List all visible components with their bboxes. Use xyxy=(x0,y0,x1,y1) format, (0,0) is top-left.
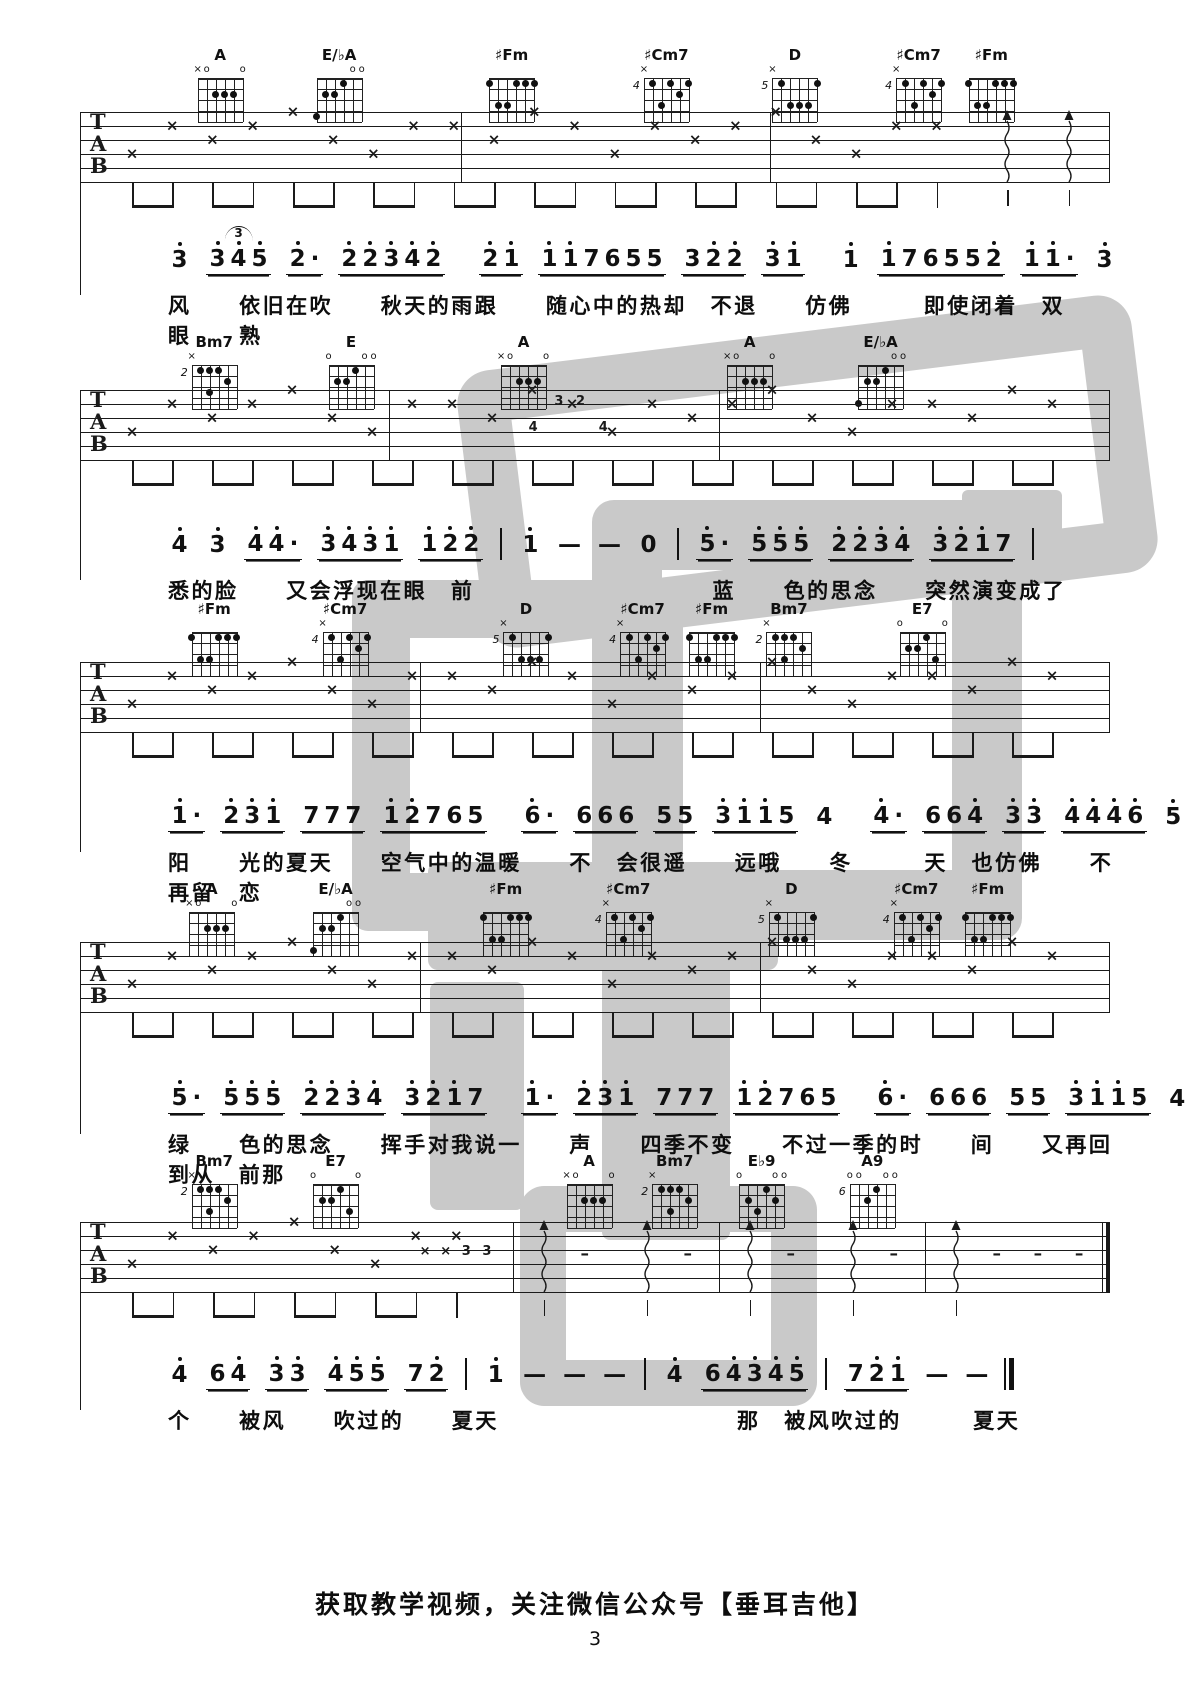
lyrics-line: 个 被风 吹过的 夏天 那 被风吹过的 夏天 xyxy=(168,1405,1118,1435)
beam xyxy=(132,755,174,758)
chord-grid-line xyxy=(727,365,772,367)
staff-line xyxy=(80,984,1110,985)
strum-x-mark: × xyxy=(126,425,139,440)
measure-barline xyxy=(389,390,390,460)
strum-x-mark: × xyxy=(806,683,819,698)
melody-group: 2234 xyxy=(300,1087,386,1114)
staff-line xyxy=(80,154,1110,155)
chord-finger-dot xyxy=(1007,914,1014,921)
note-char: 6 xyxy=(207,1363,228,1386)
chord-grid-line xyxy=(900,632,945,634)
chord-finger-dot xyxy=(346,634,353,641)
chord-name: Bm7 xyxy=(643,1152,707,1170)
note-stem xyxy=(812,732,814,758)
note-stem xyxy=(896,182,898,208)
chord-string-marker-mute: × xyxy=(648,1171,656,1181)
chord-grid-line xyxy=(567,1217,612,1218)
chord-finger-dot xyxy=(188,634,195,641)
note-char: 2 xyxy=(360,248,381,271)
note-char: 3 xyxy=(930,533,951,556)
strum-x-mark: × xyxy=(366,977,379,992)
staff-line xyxy=(80,970,1110,971)
chord-finger-dot xyxy=(337,1186,344,1193)
chord-grid-line xyxy=(739,1206,784,1207)
chord-grid-line xyxy=(772,78,817,79)
strum-x-mark: × xyxy=(966,683,979,698)
note-char: · xyxy=(308,248,322,271)
note-char: 7 xyxy=(423,805,444,828)
melody-group: 122 xyxy=(418,533,483,560)
note-char: 4 xyxy=(1104,805,1125,828)
chord-string-marker-open: o xyxy=(847,1171,853,1181)
note-stem xyxy=(456,1292,458,1318)
note-char: 3 xyxy=(287,1363,308,1386)
melody-group: 1· xyxy=(521,1087,558,1114)
chord-grid-line xyxy=(192,387,237,388)
chord-finger-dot xyxy=(611,914,618,921)
note-char: 2 xyxy=(866,1363,887,1386)
note-char: 3 xyxy=(713,805,734,828)
note-char: 4 xyxy=(1062,805,1083,828)
note-char: 4 xyxy=(402,248,423,271)
beam xyxy=(294,1315,336,1318)
note-char: 7 xyxy=(696,1087,717,1110)
staff-line xyxy=(80,998,1110,999)
note-char: 2 xyxy=(322,1087,343,1110)
strum-x-mark: × xyxy=(206,133,219,148)
staff-right-edge xyxy=(1109,662,1110,732)
note-char: · xyxy=(287,533,301,556)
note-stem xyxy=(652,732,654,758)
melody-group: 117655 xyxy=(538,248,666,275)
chord-grid-line xyxy=(483,923,528,924)
strum-x-mark: × xyxy=(566,669,579,684)
melody-group: 4 xyxy=(168,534,191,560)
melody-group: 64 xyxy=(206,1363,250,1390)
tuplet-label: 3 xyxy=(224,226,252,241)
strum-x-mark: × xyxy=(1046,397,1059,412)
chord-finger-dot xyxy=(722,634,729,641)
chord-finger-dot xyxy=(658,102,665,109)
strum-x-mark: × xyxy=(126,697,139,712)
melody-group: 4 xyxy=(168,1364,191,1390)
measure-barline xyxy=(770,112,771,182)
strum-x-mark: × xyxy=(406,949,419,964)
chord-grid-line xyxy=(900,643,945,644)
strum-x-mark: × xyxy=(806,963,819,978)
chord-finger-dot xyxy=(647,914,654,921)
chord-finger-dot xyxy=(319,1197,326,1204)
chord-grid-line xyxy=(652,1206,697,1207)
note-char: 5 xyxy=(242,1087,263,1110)
chord-grid-line xyxy=(567,1184,612,1186)
chord-grid-line xyxy=(620,632,665,633)
melody-final-barline xyxy=(1004,1358,1014,1390)
melody-group: 5· xyxy=(168,1087,205,1114)
chord-grid-line xyxy=(323,654,368,655)
chord-finger-dot xyxy=(504,102,511,109)
chord-grid-line xyxy=(313,1206,358,1207)
beam xyxy=(932,483,974,486)
chord-grid-line xyxy=(323,632,368,633)
chord-finger-dot xyxy=(626,634,633,641)
chord-finger-dot xyxy=(197,1186,204,1193)
melody-barline xyxy=(644,1358,646,1390)
note-stem xyxy=(575,182,577,208)
strum-x-mark: × xyxy=(246,949,259,964)
system-left-line xyxy=(80,112,81,295)
chord-grid-line xyxy=(965,912,1010,914)
chord-grid-line xyxy=(192,1195,237,1196)
chord-grid-line xyxy=(192,632,237,634)
strum-x-mark: × xyxy=(726,669,739,684)
note-char: 3 xyxy=(595,1087,616,1110)
melody-dash: — xyxy=(562,1364,587,1390)
chord-finger-dot xyxy=(230,91,237,98)
note-char: 1 xyxy=(381,805,402,828)
chord-finger-dot xyxy=(911,102,918,109)
chord-finger-dot xyxy=(495,102,502,109)
staff-annotation: 4 xyxy=(529,420,538,435)
strum-x-mark: × xyxy=(369,1257,382,1272)
chord-finger-dot xyxy=(935,914,942,921)
strum-x-mark: × xyxy=(846,697,859,712)
note-stem xyxy=(972,460,974,486)
chord-string-marker-mute: × xyxy=(497,352,505,362)
staff-line xyxy=(80,182,1110,183)
rest-dash: – xyxy=(786,1244,795,1264)
chord-diagram-E/♭A: E/♭Aoo xyxy=(307,46,371,122)
measure-barline xyxy=(420,942,421,1012)
melody-group: 1 xyxy=(484,1364,507,1390)
beam xyxy=(772,1035,814,1038)
note-char: 4 xyxy=(169,1364,190,1387)
chord-finger-dot xyxy=(676,91,683,98)
beam xyxy=(532,483,574,486)
note-char: 7 xyxy=(899,248,920,271)
chord-finger-dot xyxy=(545,634,552,641)
note-char: 3 xyxy=(169,249,190,272)
strum-x-mark: × xyxy=(686,411,699,426)
note-stem xyxy=(412,460,414,486)
melody-dash: — xyxy=(924,1364,949,1390)
tab-letter: T xyxy=(90,661,106,682)
chord-finger-dot xyxy=(224,378,231,385)
chord-finger-dot xyxy=(810,914,817,921)
note-stem xyxy=(252,460,254,486)
chord-grid-line xyxy=(198,89,243,90)
chord-finger-dot xyxy=(983,102,990,109)
melody-group: 231 xyxy=(573,1087,638,1114)
arrow-tail xyxy=(544,1300,546,1316)
rest-dash: – xyxy=(889,1244,898,1264)
chord-finger-dot xyxy=(322,91,329,98)
note-char: 1 xyxy=(520,534,541,557)
note-char: 5 xyxy=(941,248,962,271)
note-char: 5 xyxy=(791,533,812,556)
chord-diagram-♯Cm7: ♯Cm74× xyxy=(887,46,951,122)
chord-base-fret: 6 xyxy=(839,1185,846,1198)
beam xyxy=(454,205,496,208)
chord-base-fret: 2 xyxy=(181,1185,188,1198)
staff-annotation: 3 xyxy=(482,1244,491,1259)
chord-grid-line xyxy=(900,654,945,655)
note-char: 3 xyxy=(381,248,402,271)
melody-group: 4· xyxy=(870,805,907,832)
chord-finger-dot xyxy=(914,645,921,652)
chord-finger-dot xyxy=(751,378,758,385)
tab-letter: A xyxy=(90,963,106,984)
chord-finger-dot xyxy=(197,367,204,374)
staff-line xyxy=(80,942,1110,943)
chord-string-marker-open: o xyxy=(195,899,201,909)
strum-x-mark: × xyxy=(726,949,739,964)
note-char: 5 xyxy=(818,1087,839,1110)
note-char: 3 xyxy=(343,1087,364,1110)
measure-barline xyxy=(760,662,761,732)
melody-group: 666 xyxy=(926,1087,991,1114)
arrow-tail xyxy=(1069,190,1071,206)
note-char: 6 xyxy=(574,805,595,828)
note-stem xyxy=(1052,732,1054,758)
note-char: 5 xyxy=(169,1087,190,1110)
note-stem xyxy=(412,732,414,758)
strum-x-mark: × xyxy=(766,935,779,950)
chord-base-fret: 4 xyxy=(883,913,890,926)
chord-grid-line xyxy=(198,78,243,80)
note-char: 6 xyxy=(797,1087,818,1110)
chord-string-marker-open: o xyxy=(772,1171,778,1181)
chord-grid-line xyxy=(489,89,534,90)
chord-string-marker-open: o xyxy=(240,65,246,75)
strum-x-mark: × xyxy=(606,977,619,992)
chord-name: D xyxy=(763,46,827,64)
melody-group: 4446 xyxy=(1061,805,1147,832)
chord-diagram-Bm7: Bm72× xyxy=(643,1152,707,1228)
note-char: 3 xyxy=(1094,249,1115,272)
strum-x-mark: × xyxy=(606,697,619,712)
chord-string-marker-open: o xyxy=(891,352,897,362)
note-char: 1 xyxy=(1042,248,1063,271)
chord-finger-dot xyxy=(938,80,945,87)
strum-x-mark: × xyxy=(446,397,459,412)
staff-line xyxy=(80,1012,1110,1013)
tab-staff: TAB××××××××××××××××××××××××4324 xyxy=(80,390,1110,460)
chord-finger-dot xyxy=(590,1197,597,1204)
tab-staff: TAB×××××××××××××××××××××××× xyxy=(80,942,1110,1012)
note-char: 5 xyxy=(623,248,644,271)
chord-finger-dot xyxy=(676,1186,683,1193)
chord-grid-line xyxy=(894,923,939,924)
strum-x-mark: × xyxy=(846,977,859,992)
chord-name: A xyxy=(557,1152,621,1170)
melody-dash: — xyxy=(522,1364,547,1390)
chord-diagram-E7: E7oo xyxy=(304,1152,368,1228)
strum-x-mark: × xyxy=(246,119,259,134)
chord-name: Bm7 xyxy=(757,600,821,618)
chord-finger-dot xyxy=(754,1208,761,1215)
chord-name: E7 xyxy=(890,600,954,618)
chord-string-marker-open: o xyxy=(883,1171,889,1181)
chord-string-marker-open: o xyxy=(733,352,739,362)
chord-name: E/♭A xyxy=(307,46,371,64)
note-char: 4 xyxy=(228,1363,249,1386)
chord-base-fret: 4 xyxy=(312,633,319,646)
chord-base-fret: 5 xyxy=(761,79,768,92)
beam xyxy=(213,1315,255,1318)
note-char: 7 xyxy=(675,1087,696,1110)
note-char: 7 xyxy=(776,1087,797,1110)
beam xyxy=(534,205,576,208)
strum-x-mark: × xyxy=(166,949,179,964)
note-stem xyxy=(1052,1012,1054,1038)
note-char: 1 xyxy=(501,248,522,271)
melody-group: 3115 xyxy=(1065,1087,1151,1114)
arrow-tail xyxy=(750,1300,752,1316)
chord-finger-dot xyxy=(778,80,785,87)
chord-name: ♯Fm xyxy=(680,600,744,618)
strum-x-mark: × xyxy=(1046,669,1059,684)
chord-finger-dot xyxy=(902,80,909,87)
melody-barline xyxy=(825,1358,827,1390)
strum-x-mark: × xyxy=(406,397,419,412)
melody-group: 2234 xyxy=(828,533,914,560)
note-stem xyxy=(252,732,254,758)
tab-letter: B xyxy=(90,433,108,454)
chord-finger-dot xyxy=(658,1186,665,1193)
staff-line xyxy=(80,168,1110,169)
chord-string-marker-open: o xyxy=(507,352,513,362)
note-char: 2 xyxy=(574,1087,595,1110)
chord-grid-line xyxy=(313,1184,358,1186)
strum-x-mark: × xyxy=(886,949,899,964)
beam xyxy=(292,755,334,758)
note-stem xyxy=(732,1012,734,1038)
chord-finger-dot xyxy=(962,914,969,921)
melody-group: 4 xyxy=(1166,1088,1189,1114)
chord-finger-dot xyxy=(772,1197,779,1204)
staff-annotation: 3 xyxy=(554,394,563,409)
strum-x-mark: × xyxy=(328,1243,341,1258)
note-char: 1 xyxy=(381,533,402,556)
note-char: 0 xyxy=(638,534,659,557)
chord-finger-dot xyxy=(713,634,720,641)
note-char: 2 xyxy=(983,248,1004,271)
chord-finger-dot xyxy=(649,80,656,87)
chord-finger-dot xyxy=(328,1197,335,1204)
note-char: 6 xyxy=(595,805,616,828)
measure-barline xyxy=(719,390,720,460)
melody-group: 1 xyxy=(839,249,862,275)
melody-group: 3431 xyxy=(317,533,403,560)
note-char: 6 xyxy=(920,248,941,271)
chord-base-fret: 2 xyxy=(755,633,762,646)
strum-arrow-icon xyxy=(847,1220,859,1294)
note-char: 1 xyxy=(734,805,755,828)
strum-arrow xyxy=(538,1220,550,1298)
strum-x-mark: × xyxy=(568,119,581,134)
melody-group: 664 xyxy=(922,805,987,832)
tab-letter: A xyxy=(90,133,106,154)
jianpu-melody-line: 4344·34311221——05·55522343217 xyxy=(168,528,1118,560)
note-char: 1 xyxy=(263,805,284,828)
chord-string-marker-mute: × xyxy=(616,619,624,629)
rest-dash: – xyxy=(580,1244,589,1264)
beam xyxy=(532,1035,574,1038)
note-char: 1 xyxy=(887,1363,908,1386)
strum-x-mark: × xyxy=(286,935,299,950)
note-char: 6 xyxy=(602,248,623,271)
note-char: 2 xyxy=(221,805,242,828)
chord-finger-dot xyxy=(667,1208,674,1215)
chord-finger-dot xyxy=(989,914,996,921)
chord-grid-line xyxy=(313,923,358,924)
chord-string-marker-mute: × xyxy=(762,619,770,629)
chord-name: Bm7 xyxy=(182,333,246,351)
note-char: 1 xyxy=(419,533,440,556)
chord-finger-dot xyxy=(212,91,219,98)
chord-string-marker-open: o xyxy=(310,1171,316,1181)
strum-x-mark: × xyxy=(766,655,779,670)
chord-grid-line xyxy=(969,100,1014,101)
system-left-line xyxy=(80,1222,81,1410)
staff-line xyxy=(80,956,1110,957)
strum-x-mark: × xyxy=(409,1229,422,1244)
note-stem xyxy=(652,460,654,486)
beam xyxy=(612,755,654,758)
strum-x-mark: × xyxy=(166,119,179,134)
chord-string-marker-mute: × xyxy=(187,1171,195,1181)
system-left-line xyxy=(80,662,81,852)
beam xyxy=(132,1035,174,1038)
note-char: 5 xyxy=(221,1087,242,1110)
measure-barline xyxy=(513,1222,514,1292)
note-char: 1 xyxy=(972,533,993,556)
note-stem xyxy=(332,460,334,486)
strum-x-mark: × xyxy=(247,1229,260,1244)
note-stem xyxy=(572,732,574,758)
chord-grid-line xyxy=(313,934,358,935)
jianpu-melody-line: 46433455721———464345721—— xyxy=(168,1358,1118,1390)
melody-dash: — xyxy=(964,1364,989,1390)
note-char: 4 xyxy=(723,1363,744,1386)
chord-finger-dot xyxy=(328,925,335,932)
strum-x-mark: × xyxy=(206,411,219,426)
chord-name: ♯Fm xyxy=(474,880,538,898)
chord-name: ♯Cm7 xyxy=(596,880,660,898)
note-char: 5 xyxy=(675,805,696,828)
chord-diagram-A: A×oo xyxy=(188,46,252,122)
note-char: 6 xyxy=(702,1363,723,1386)
chord-finger-dot xyxy=(513,80,520,87)
strum-x-mark: × xyxy=(608,147,621,162)
chord-grid-line xyxy=(501,376,546,377)
note-char: 3 xyxy=(744,1363,765,1386)
note-char: · xyxy=(190,1087,204,1110)
note-char: 5 xyxy=(962,248,983,271)
chord-string-marker-open: o xyxy=(204,65,210,75)
note-char: 4 xyxy=(814,806,835,829)
melody-group: 55 xyxy=(1006,1087,1050,1114)
chord-grid-line xyxy=(766,632,811,633)
note-stem xyxy=(333,182,335,208)
chord-base-fret: 4 xyxy=(609,633,616,646)
note-stem xyxy=(254,1292,256,1318)
chord-finger-dot xyxy=(864,378,871,385)
melody-group: 5 xyxy=(1162,806,1185,832)
strum-x-mark: × xyxy=(206,683,219,698)
strum-x-mark: × xyxy=(486,963,499,978)
